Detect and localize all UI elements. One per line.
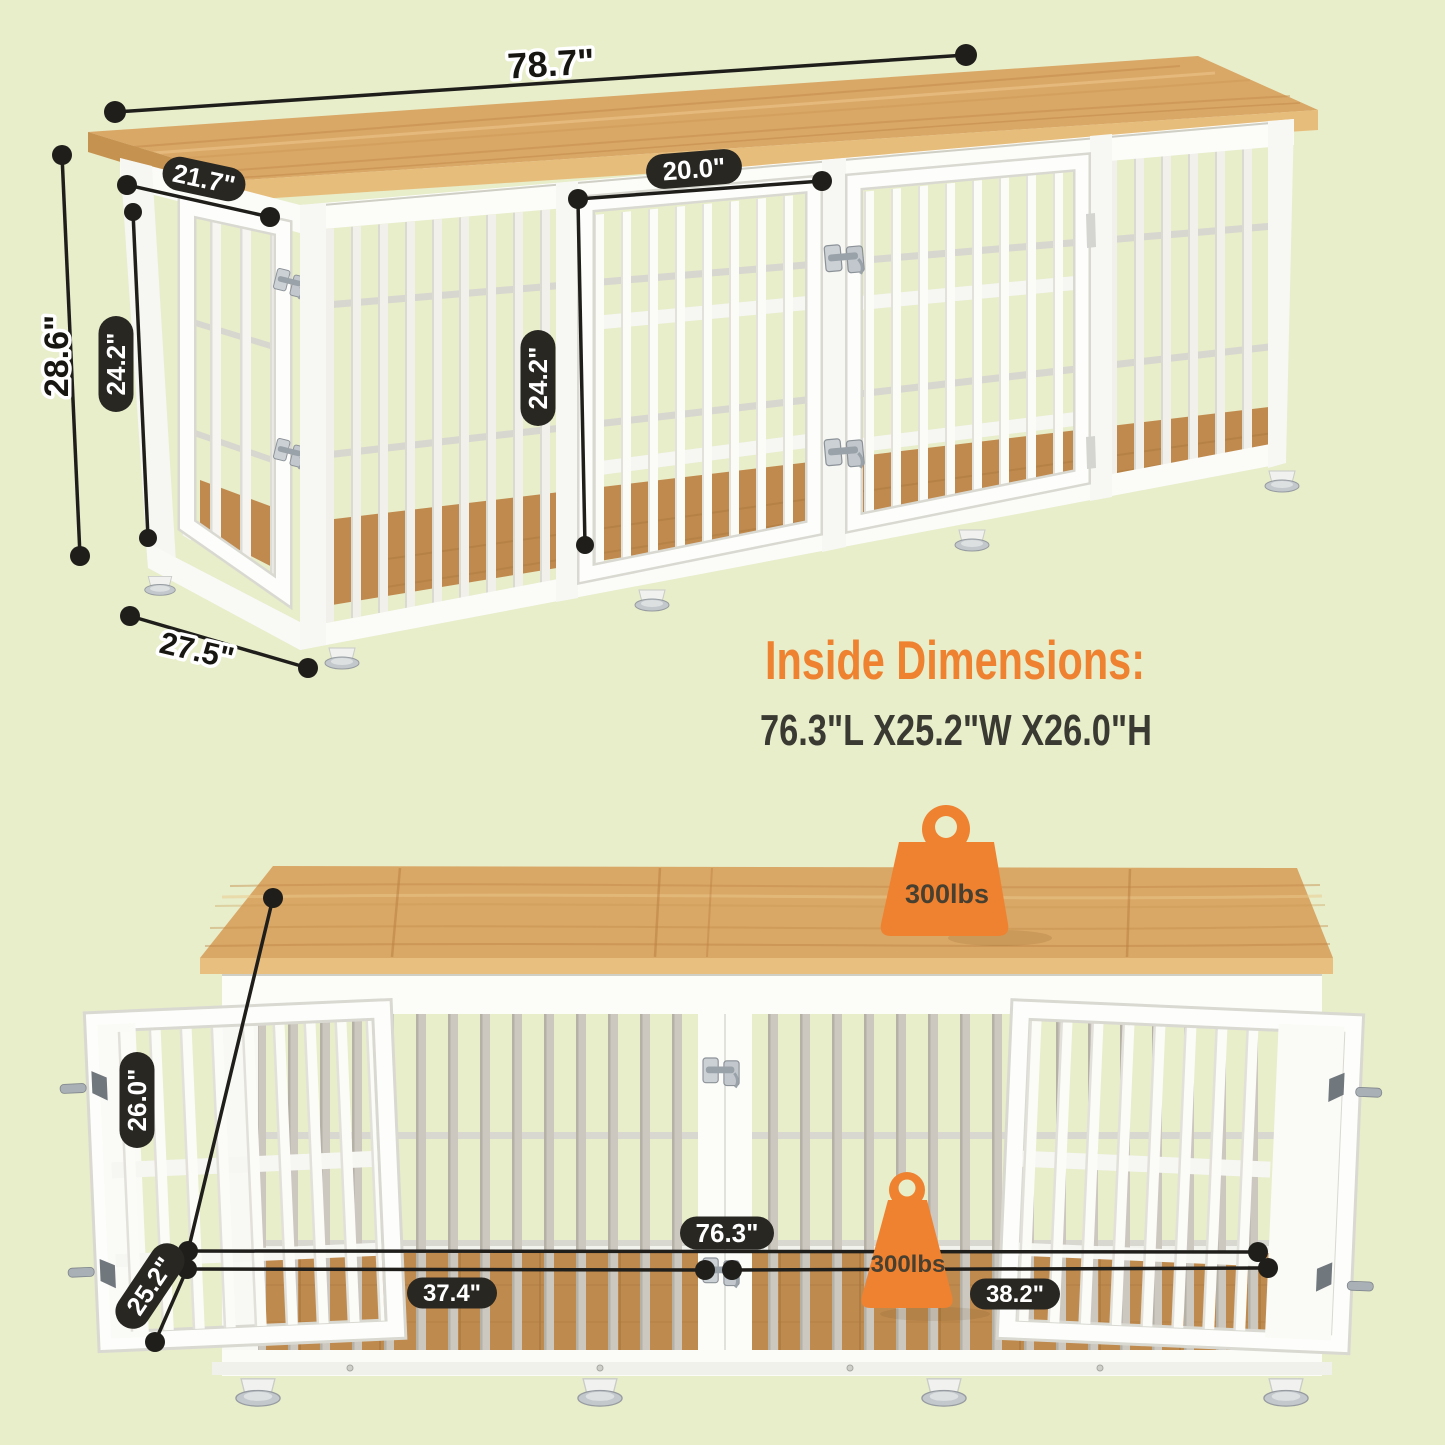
open-door-left [57,1009,396,1343]
svg-text:78.7": 78.7" [506,40,595,86]
top-load-label: 300lbs [905,879,989,909]
diagram-canvas: 300lbs 300lbs 78.7" 21.7" 28.6" 24.2" 20… [0,0,1445,1445]
front-door-left-bars [593,194,807,567]
svg-text:27.5": 27.5" [156,625,237,676]
label-left-section: 37.4" [407,1278,497,1309]
product-dimension-diagram: 300lbs 300lbs 78.7" 21.7" 28.6" 24.2" 20… [0,0,1445,1445]
door-pin-icon [60,1083,86,1093]
front-door-right-bars [861,171,1075,516]
label-overall-height: 28.6" [38,315,76,397]
label-inner-height: 26.0" [120,1052,155,1148]
svg-text:20.0": 20.0" [661,152,726,187]
inside-dimensions-heading: Inside Dimensions: [765,629,1145,691]
svg-text:38.2": 38.2" [986,1281,1044,1308]
label-base-depth: 27.5" [156,625,237,676]
fixed-bars-section [1112,147,1268,475]
crate-feet-front [236,1379,1308,1406]
label-inner-length: 76.3" [680,1217,774,1250]
svg-text:76.3": 76.3" [696,1218,759,1248]
fixed-bars-section [326,209,556,623]
svg-text:24.2": 24.2" [101,333,131,396]
label-overall-length: 78.7" [506,40,595,86]
inside-dimensions-value: 76.3"L X25.2"W X26.0"H [760,706,1152,755]
label-right-section: 38.2" [970,1279,1060,1310]
front-panel [300,119,1294,650]
bottom-front-view [57,866,1384,1406]
label-front-door-height: 24.2" [521,330,556,426]
floor-load-label: 300lbs [871,1251,946,1278]
door-pin-icon [1356,1087,1382,1097]
svg-text:24.2": 24.2" [523,347,553,410]
door-pin-icon [68,1267,94,1277]
label-side-door-height: 24.2" [99,316,134,412]
door-pin-icon [1347,1281,1373,1291]
svg-text:37.4": 37.4" [423,1280,481,1307]
wood-tabletop-front [200,866,1333,974]
svg-text:28.6": 28.6" [38,315,76,397]
svg-text:26.0": 26.0" [122,1069,152,1132]
top-perspective-view [88,56,1318,669]
open-door-right [1007,1010,1385,1346]
inside-dimensions-block: Inside Dimensions: 76.3"L X25.2"W X26.0"… [760,629,1152,755]
